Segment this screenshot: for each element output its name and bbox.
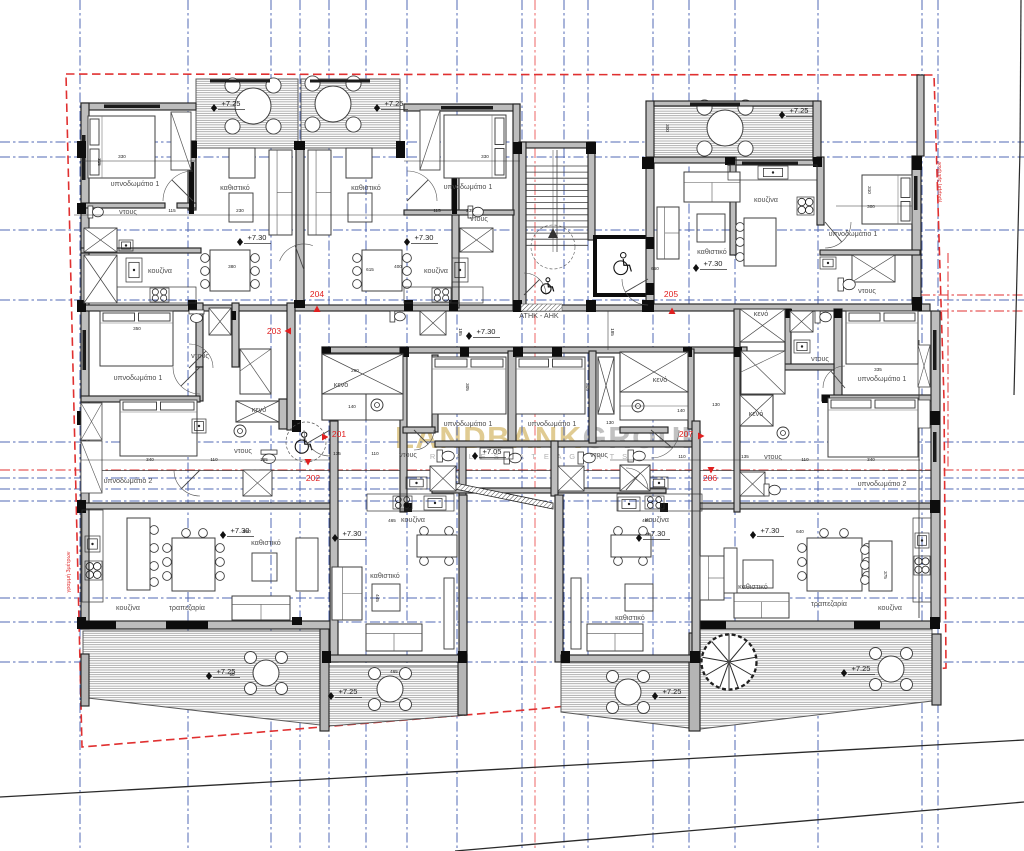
svg-text:110: 110: [678, 454, 686, 459]
svg-text:380: 380: [228, 264, 236, 269]
svg-text:+7.30: +7.30: [415, 233, 434, 242]
svg-text:+7.30: +7.30: [477, 327, 496, 336]
svg-text:+7.30: +7.30: [704, 259, 723, 268]
svg-text:γραμμή 3μέτρων: γραμμή 3μέτρων: [936, 161, 943, 202]
svg-text:τραπεζαρία: τραπεζαρία: [811, 599, 847, 608]
svg-text:υπνοδωμάτιο 1: υπνοδωμάτιο 1: [829, 229, 878, 238]
svg-text:τραπεζαρία: τραπεζαρία: [169, 603, 205, 612]
svg-text:202: 202: [306, 473, 320, 483]
svg-text:230: 230: [236, 208, 244, 213]
svg-text:340: 340: [146, 457, 154, 462]
svg-text:ντους: ντους: [119, 207, 137, 216]
svg-text:υπνοδωμάτιο 2: υπνοδωμάτιο 2: [858, 479, 907, 488]
svg-text:203: 203: [267, 326, 281, 336]
svg-text:445: 445: [375, 594, 380, 602]
svg-text:κουζίνα: κουζίνα: [401, 515, 425, 524]
svg-text:300: 300: [665, 124, 670, 132]
svg-text:+7.25: +7.25: [663, 687, 682, 696]
svg-text:ντους: ντους: [399, 450, 417, 459]
svg-text:185: 185: [458, 328, 463, 336]
svg-text:375: 375: [883, 571, 888, 579]
svg-text:κουζίνα: κουζίνα: [754, 195, 778, 204]
svg-text:140: 140: [348, 404, 356, 409]
svg-text:115: 115: [168, 208, 176, 213]
svg-text:165: 165: [260, 457, 268, 462]
svg-text:ντους: ντους: [858, 286, 876, 295]
svg-text:650: 650: [651, 266, 659, 271]
svg-text:640: 640: [796, 529, 804, 534]
svg-text:ντους: ντους: [470, 214, 488, 223]
svg-text:310: 310: [867, 186, 872, 194]
svg-text:καθιστικό: καθιστικό: [697, 247, 727, 256]
svg-text:110: 110: [371, 451, 379, 456]
svg-text:201: 201: [332, 429, 346, 439]
svg-text:ντους: ντους: [191, 351, 209, 360]
svg-text:καθιστικό: καθιστικό: [251, 538, 281, 547]
svg-text:115: 115: [433, 208, 441, 213]
svg-text:+7.25: +7.25: [385, 99, 404, 108]
svg-text:330: 330: [118, 154, 126, 159]
svg-text:+7.25: +7.25: [217, 667, 236, 676]
svg-text:204: 204: [310, 289, 324, 299]
svg-text:υπνοδωμάτιο 1: υπνοδωμάτιο 1: [858, 374, 907, 383]
svg-text:340: 340: [867, 457, 875, 462]
svg-text:+7.25: +7.25: [339, 687, 358, 696]
svg-text:καθιστικό: καθιστικό: [370, 571, 400, 580]
svg-text:335: 335: [874, 367, 882, 372]
svg-text:465: 465: [388, 518, 396, 523]
svg-text:235: 235: [466, 208, 474, 213]
svg-text:130: 130: [606, 420, 614, 425]
svg-text:+7.30: +7.30: [761, 526, 780, 535]
svg-text:130: 130: [712, 402, 720, 407]
svg-text:κουζίνα: κουζίνα: [116, 603, 140, 612]
svg-text:300: 300: [867, 204, 875, 209]
svg-text:135: 135: [333, 451, 341, 456]
svg-text:615: 615: [366, 267, 374, 272]
svg-text:110: 110: [801, 457, 809, 462]
svg-text:+7.25: +7.25: [852, 664, 871, 673]
svg-text:καθιστικό: καθιστικό: [351, 183, 381, 192]
svg-text:ντους: ντους: [764, 452, 782, 461]
svg-text:+7.30: +7.30: [231, 526, 250, 535]
svg-text:καθιστικό: καθιστικό: [738, 582, 768, 591]
svg-text:400: 400: [394, 264, 402, 269]
svg-text:+7.30: +7.30: [248, 233, 267, 242]
svg-text:135: 135: [741, 454, 749, 459]
svg-text:305: 305: [465, 383, 470, 391]
svg-text:+7.05: +7.05: [483, 447, 502, 456]
svg-text:υπνοδωμάτιο 1: υπνοδωμάτιο 1: [111, 179, 160, 188]
svg-text:+7.25: +7.25: [222, 99, 241, 108]
svg-text:205: 205: [664, 289, 678, 299]
svg-text:υπνοδωμάτιο 2: υπνοδωμάτιο 2: [104, 476, 153, 485]
svg-text:305: 305: [585, 383, 590, 391]
svg-text:ντους: ντους: [590, 450, 608, 459]
svg-text:185: 185: [610, 328, 615, 336]
svg-text:ΑΤΗΚ - ΑΗΚ: ΑΤΗΚ - ΑΗΚ: [519, 311, 559, 320]
svg-text:350: 350: [133, 326, 141, 331]
svg-text:υπνοδωμάτιο 1: υπνοδωμάτιο 1: [114, 373, 163, 382]
svg-text:140: 140: [677, 408, 685, 413]
svg-text:κουζίνα: κουζίνα: [878, 603, 902, 612]
svg-text:330: 330: [481, 154, 489, 159]
svg-text:κουζίνα: κουζίνα: [424, 266, 448, 275]
svg-text:206: 206: [703, 473, 717, 483]
svg-text:+7.30: +7.30: [343, 529, 362, 538]
svg-text:κουζίνα: κουζίνα: [148, 266, 172, 275]
svg-text:465: 465: [390, 669, 398, 674]
svg-text:315: 315: [97, 158, 102, 166]
svg-text:ντους: ντους: [234, 446, 252, 455]
svg-text:κενό: κενό: [754, 309, 768, 318]
svg-text:υπνοδωμάτιο 1: υπνοδωμάτιο 1: [528, 419, 577, 428]
svg-text:υπνοδωμάτιο 1: υπνοδωμάτιο 1: [444, 182, 493, 191]
svg-text:κενό: κενό: [252, 405, 266, 414]
svg-text:κουζίνα: κουζίνα: [645, 515, 669, 524]
svg-text:καθιστικό: καθιστικό: [220, 183, 250, 192]
svg-text:κενό: κενό: [749, 409, 763, 418]
svg-text:110: 110: [210, 457, 218, 462]
svg-text:καθιστικό: καθιστικό: [615, 613, 645, 622]
svg-text:γραμμή 3μέτρων: γραμμή 3μέτρων: [65, 551, 72, 592]
svg-text:κενό: κενό: [653, 375, 667, 384]
svg-text:υπνοδωμάτιο 1: υπνοδωμάτιο 1: [444, 419, 493, 428]
svg-text:ντους: ντους: [811, 354, 829, 363]
svg-text:κενό: κενό: [334, 380, 348, 389]
svg-text:207: 207: [679, 429, 693, 439]
svg-text:+7.25: +7.25: [790, 106, 809, 115]
svg-text:+7.30: +7.30: [647, 529, 666, 538]
svg-text:260: 260: [351, 368, 359, 373]
